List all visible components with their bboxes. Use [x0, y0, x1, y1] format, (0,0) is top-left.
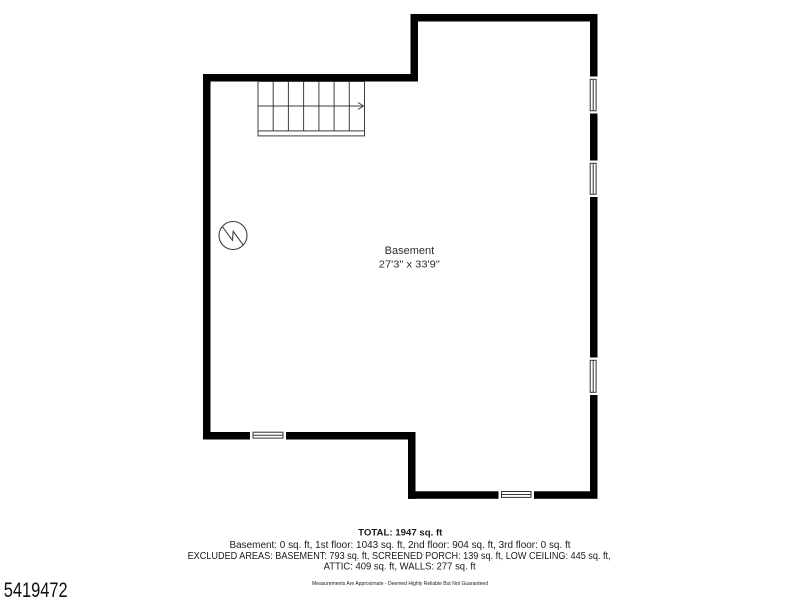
svg-text:EXCLUDED AREAS: BASEMENT: 793: EXCLUDED AREAS: BASEMENT: 793 sq. ft, SC… — [188, 551, 611, 562]
svg-text:ATTIC: 409 sq. ft, WALLS: 277: ATTIC: 409 sq. ft, WALLS: 277 sq. ft — [324, 562, 476, 573]
svg-text:TOTAL: 1947 sq. ft: TOTAL: 1947 sq. ft — [358, 527, 443, 538]
svg-text:Measurements Are Approximate -: Measurements Are Approximate - Deemed Hi… — [312, 581, 488, 587]
svg-text:27'3" x 33'9": 27'3" x 33'9" — [379, 260, 440, 271]
svg-text:5419472: 5419472 — [4, 579, 68, 600]
svg-text:Basement: Basement — [385, 245, 435, 257]
svg-text:Basement: 0 sq. ft, 1st floor:: Basement: 0 sq. ft, 1st floor: 1043 sq. … — [230, 540, 571, 551]
